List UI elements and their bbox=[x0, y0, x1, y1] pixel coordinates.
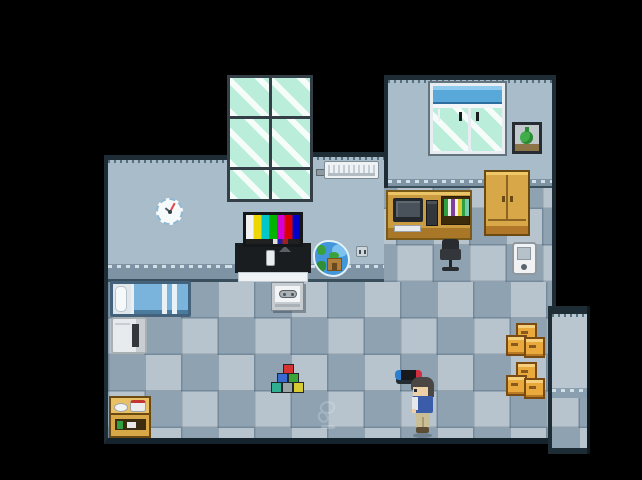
window-pane bbox=[230, 119, 269, 167]
gamepad-sign[interactable] bbox=[271, 282, 304, 311]
keyboard bbox=[394, 225, 421, 232]
plant bbox=[317, 245, 326, 255]
picture-base bbox=[515, 144, 539, 151]
window-blind bbox=[433, 86, 502, 104]
ac-grill bbox=[328, 165, 375, 173]
appliance-lid-line bbox=[115, 323, 130, 325]
tv-cabinet[interactable] bbox=[235, 243, 311, 273]
bed-sheet-line bbox=[131, 284, 134, 314]
character-leg-split bbox=[422, 417, 424, 427]
cardboard-boxes-upper[interactable] bbox=[505, 321, 547, 357]
aquarium-water bbox=[313, 240, 350, 277]
ledge-dashes bbox=[552, 389, 587, 392]
book-shelf bbox=[441, 196, 470, 225]
aquarium[interactable] bbox=[311, 239, 352, 280]
window-pane bbox=[272, 78, 311, 116]
blind-cord bbox=[438, 109, 440, 121]
flask-icon bbox=[520, 131, 533, 144]
chair-seat bbox=[440, 249, 461, 260]
cardboard-boxes-lower[interactable] bbox=[505, 360, 547, 400]
ac-vent bbox=[328, 173, 375, 176]
ac-body bbox=[324, 161, 379, 179]
character-eye bbox=[414, 389, 417, 392]
tv-screen-lower-bars bbox=[246, 239, 300, 244]
window-divider bbox=[468, 108, 471, 151]
wall-left-ledge bbox=[108, 264, 240, 282]
remote-control bbox=[266, 250, 275, 266]
wardrobe[interactable] bbox=[484, 170, 530, 236]
sign-base-line bbox=[275, 304, 300, 307]
tv[interactable] bbox=[243, 212, 303, 247]
window-pane bbox=[272, 170, 311, 199]
clock-center bbox=[168, 210, 172, 214]
chair-base bbox=[442, 267, 459, 271]
framed-picture[interactable] bbox=[512, 122, 542, 154]
plant bbox=[316, 261, 326, 272]
washing-machine[interactable] bbox=[111, 317, 147, 354]
flask-neck bbox=[525, 127, 529, 132]
window-pane bbox=[230, 170, 269, 199]
castle-door bbox=[332, 263, 337, 270]
outlet-hole bbox=[359, 250, 361, 254]
blind-pull-right bbox=[476, 112, 479, 121]
alcove-bottom-border bbox=[552, 448, 587, 454]
side-alcove bbox=[548, 306, 590, 454]
monitor bbox=[393, 198, 423, 222]
pot bbox=[130, 400, 146, 412]
monitor-screen bbox=[396, 201, 420, 217]
gamepad-icon bbox=[279, 290, 297, 298]
tv-cabinet-base bbox=[238, 272, 308, 282]
wardrobe-split bbox=[506, 175, 508, 219]
office-chair[interactable] bbox=[437, 239, 464, 273]
window-pane bbox=[230, 78, 269, 116]
dish-shelf[interactable] bbox=[109, 396, 151, 438]
handheld-device[interactable] bbox=[512, 242, 537, 275]
outlet-hole bbox=[364, 250, 366, 254]
computer-tower bbox=[426, 200, 438, 226]
alcove-floor bbox=[552, 398, 587, 448]
bowl bbox=[114, 403, 128, 412]
tv-screen-colorbars bbox=[246, 215, 300, 239]
wardrobe-handle bbox=[510, 196, 513, 202]
window-pane bbox=[272, 119, 311, 167]
alcove-wall bbox=[552, 314, 587, 388]
alcove-stitch bbox=[552, 314, 587, 317]
small-box bbox=[127, 422, 136, 428]
wall-clock[interactable] bbox=[156, 198, 183, 225]
bed-pillow bbox=[115, 286, 127, 312]
crate bbox=[524, 337, 545, 358]
shelf-niche bbox=[115, 419, 146, 430]
appliance-slot bbox=[132, 324, 139, 347]
bed[interactable] bbox=[110, 281, 191, 317]
wardrobe-drawer-line bbox=[488, 219, 526, 221]
blanket-stripe bbox=[172, 284, 177, 314]
blind-window[interactable] bbox=[428, 81, 507, 156]
blind-pull-left bbox=[459, 112, 462, 121]
watermark-bar bbox=[321, 425, 335, 429]
wall-left-stitch bbox=[108, 160, 240, 163]
player-character[interactable] bbox=[407, 376, 438, 440]
gamepad-dot bbox=[283, 293, 286, 296]
blanket-stripe bbox=[162, 284, 167, 314]
device-screen bbox=[517, 247, 531, 260]
character-shadow bbox=[413, 433, 432, 438]
computer-desk[interactable] bbox=[386, 190, 472, 240]
gamepad-dot bbox=[291, 293, 294, 296]
floor-watermark bbox=[312, 401, 346, 433]
device-button bbox=[521, 264, 527, 270]
alcove-ledge bbox=[552, 388, 587, 398]
air-conditioner[interactable] bbox=[316, 160, 380, 182]
green-bottle bbox=[117, 421, 123, 429]
block-yellow bbox=[293, 382, 304, 393]
blind-highlight bbox=[433, 86, 502, 90]
ledge-dashes bbox=[108, 265, 240, 268]
large-window[interactable] bbox=[227, 75, 313, 202]
game-viewport[interactable] bbox=[0, 0, 642, 480]
character-shoes bbox=[416, 427, 429, 433]
block-teal bbox=[271, 382, 282, 393]
alcove-top-border bbox=[552, 306, 587, 314]
power-outlet bbox=[356, 246, 368, 257]
wardrobe-handle bbox=[502, 196, 505, 202]
toy-blocks[interactable] bbox=[270, 364, 305, 394]
crate bbox=[524, 378, 545, 399]
books bbox=[444, 199, 469, 216]
block-gray bbox=[282, 382, 293, 393]
